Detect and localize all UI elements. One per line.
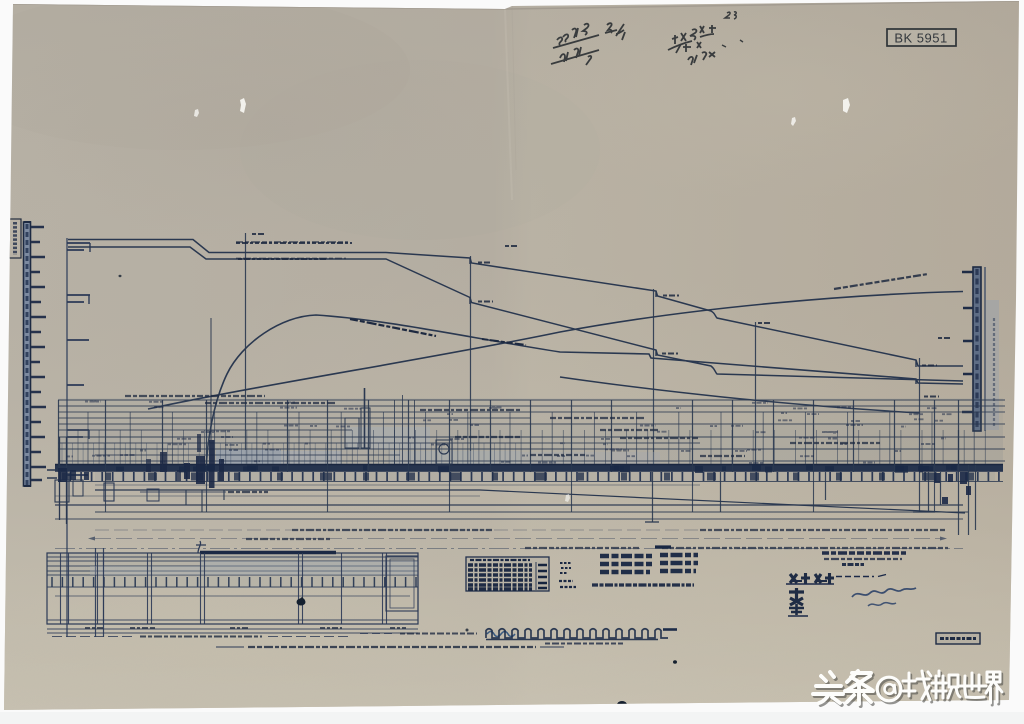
svg-text:BK 5951: BK 5951 (894, 31, 947, 46)
